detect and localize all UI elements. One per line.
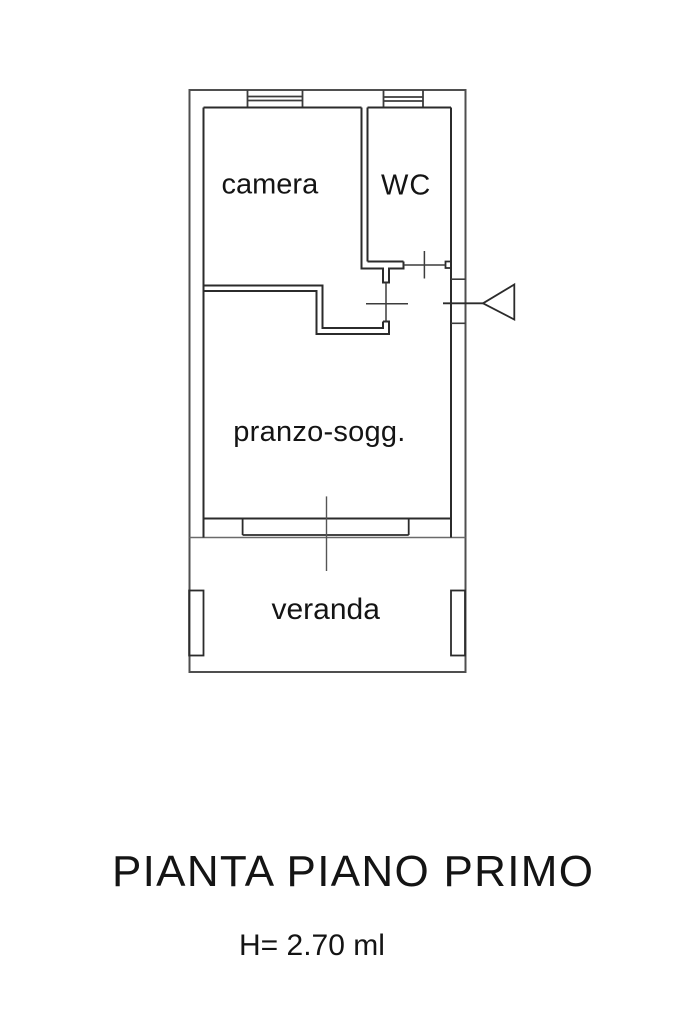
svg-text:H= 2.70 ml: H= 2.70 ml [239,929,385,962]
svg-text:camera: camera [222,169,320,201]
svg-text:veranda: veranda [272,593,381,626]
svg-text:PIANTA PIANO PRIMO: PIANTA PIANO PRIMO [112,847,594,896]
svg-text:pranzo-sogg.: pranzo-sogg. [233,416,405,448]
svg-text:WC: WC [381,170,431,202]
